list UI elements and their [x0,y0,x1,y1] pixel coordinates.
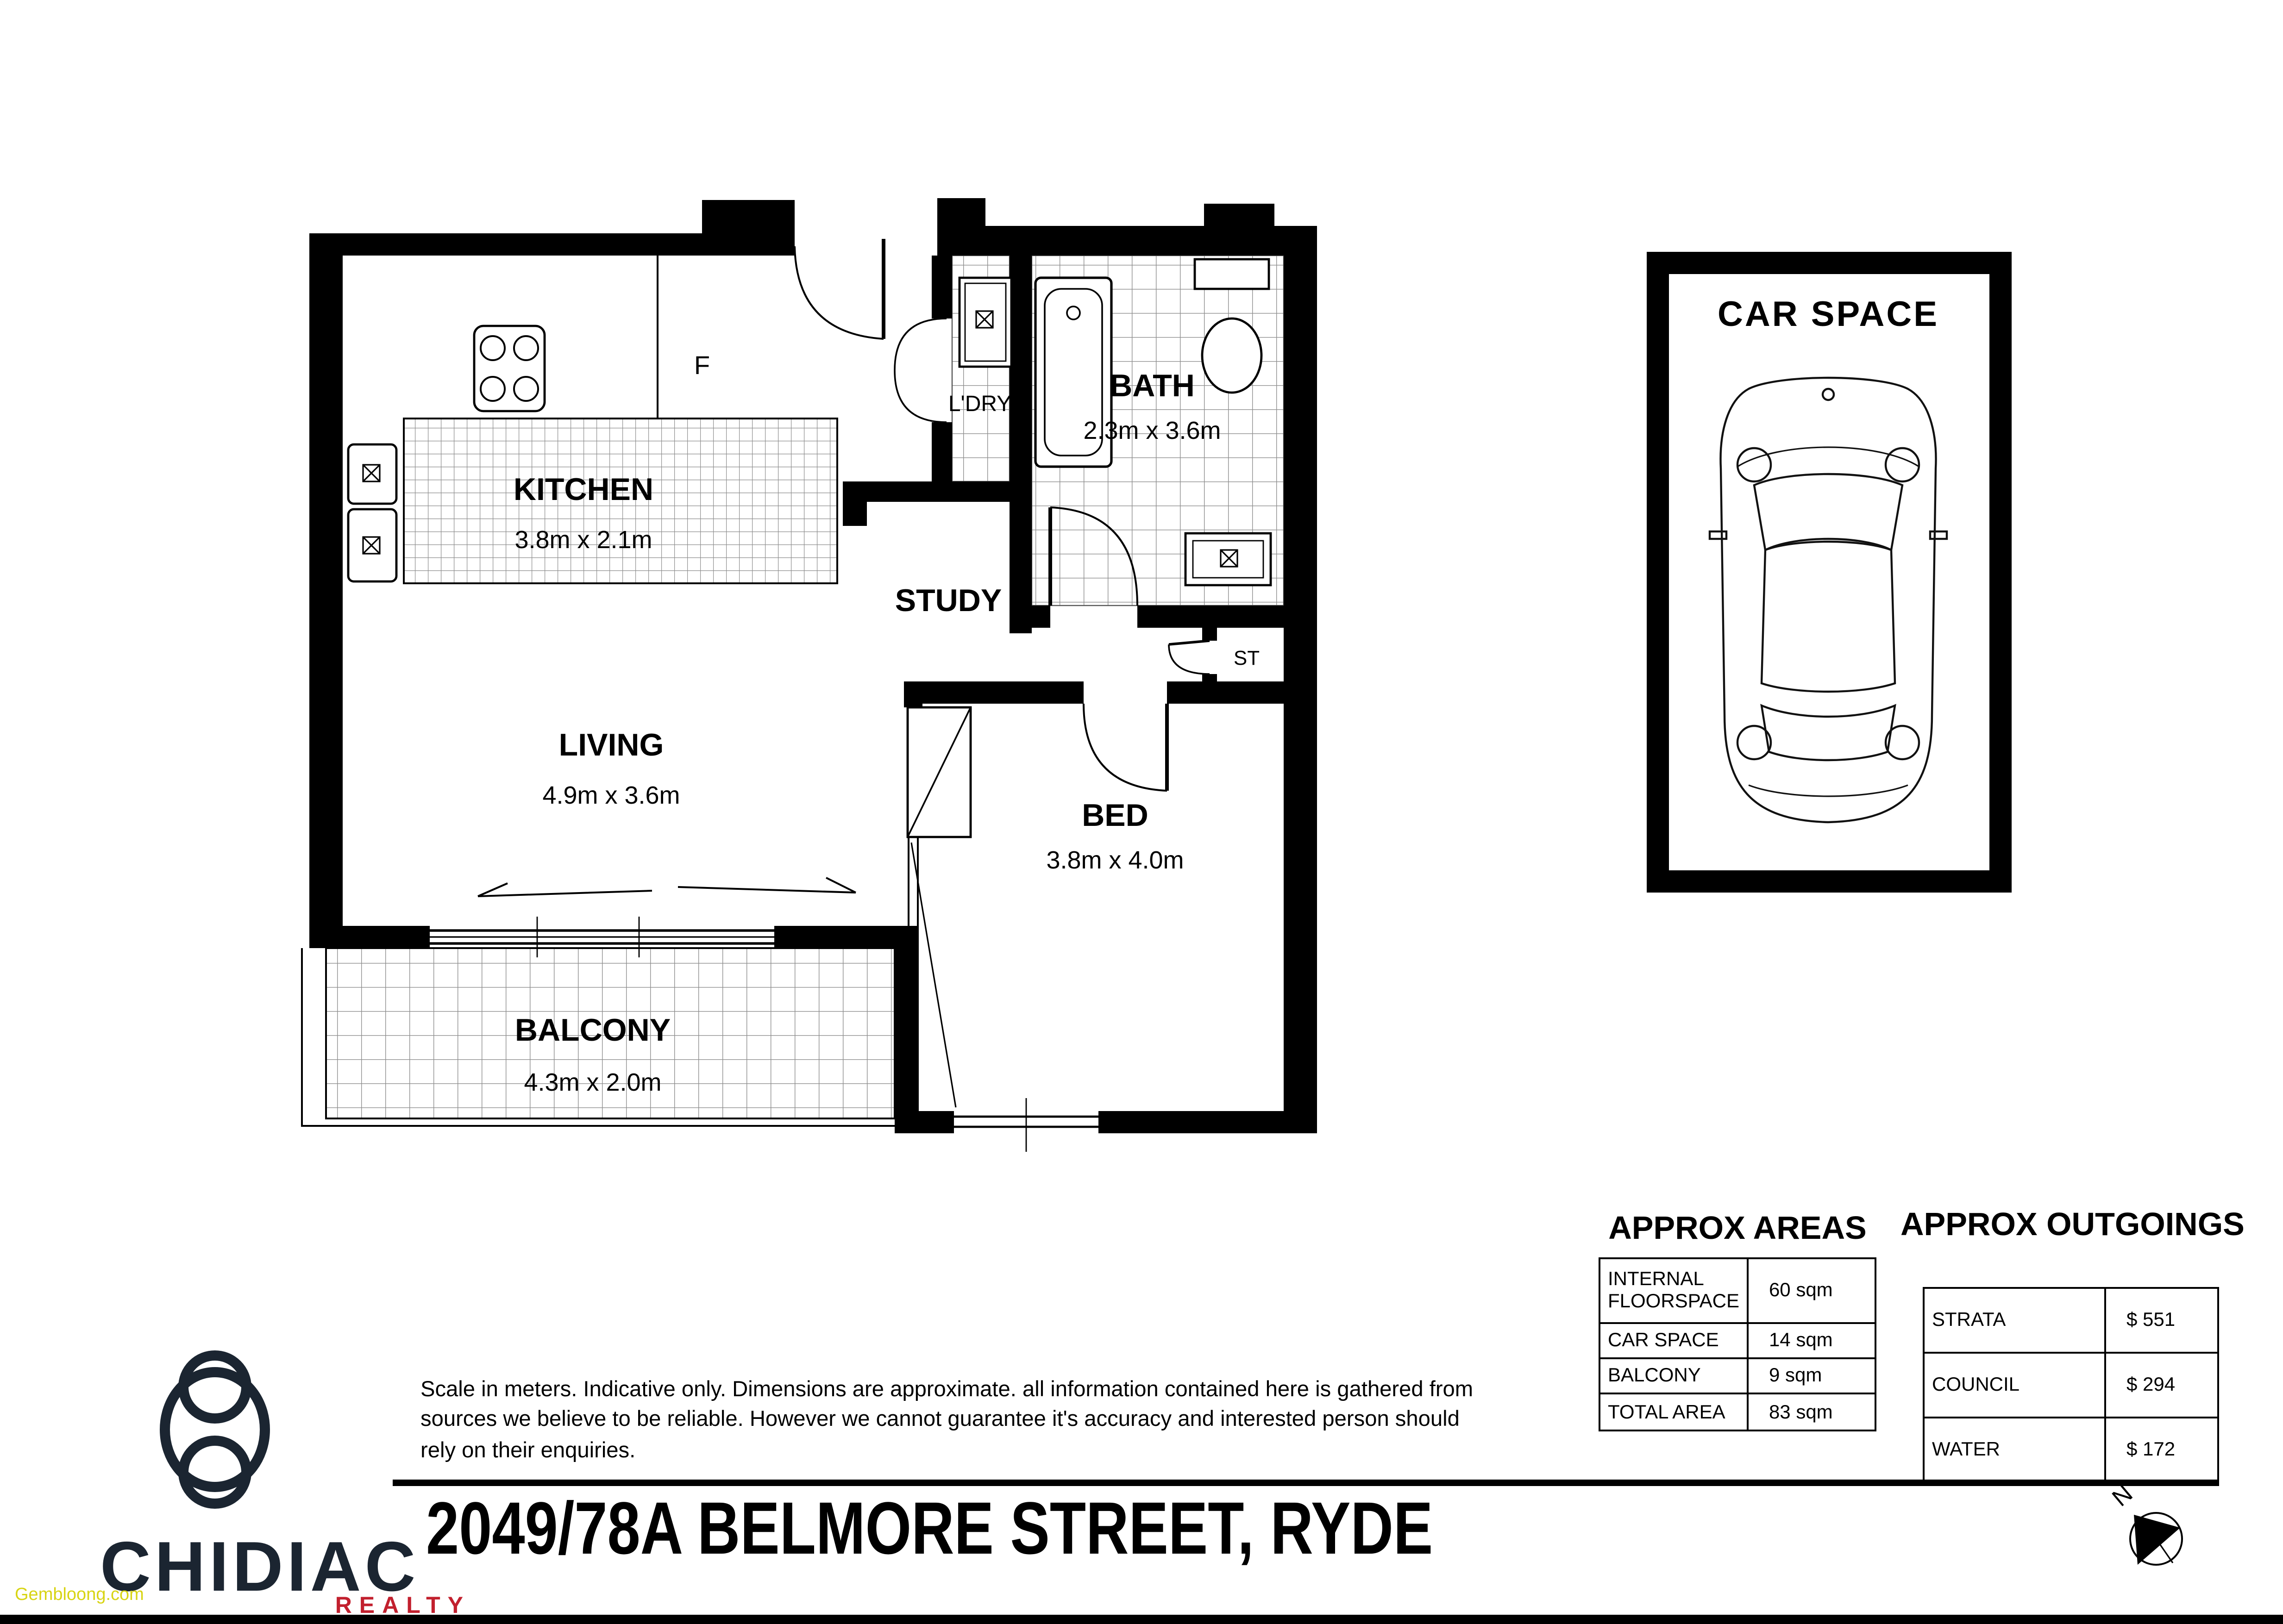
wall-entry-pier [702,200,795,256]
sink-cross-icon [363,465,380,481]
outgoing-label: STRATA [1924,1288,2105,1353]
laundry-label: L'DRY [948,392,1011,416]
area-value: 60 sqm [1748,1258,1875,1323]
table-row: STRATA $ 551 [1924,1288,2218,1353]
logo-top-ring [183,1355,246,1418]
areas-table-title: APPROX AREAS [1586,1209,1889,1248]
toilet-cistern [1195,259,1269,289]
study-label: STUDY [895,583,1002,618]
slider-arrow-right [678,878,856,893]
wall-bed-top-right [1167,681,1317,704]
wall-study-top [843,481,1032,502]
car-antenna [1823,389,1834,400]
kitchen-dims: 3.8m x 2.1m [514,526,652,554]
car-rear-window [1762,706,1895,760]
table-row: BALCONY 9 sqm [1599,1358,1875,1393]
outgoing-value: $ 172 [2105,1418,2218,1480]
north-compass: N [2107,1480,2182,1565]
logo-bottom-ring [183,1441,246,1504]
area-value: 14 sqm [1748,1323,1875,1358]
stove-burner-1 [481,336,505,360]
storage-label: ST [1234,647,1260,669]
car-windshield [1754,474,1902,550]
car-wheel-fr [1886,448,1919,481]
floorplan-sheet: KITCHEN 3.8m x 2.1m F L'DRY BATH 2.3m x … [0,0,2283,1624]
page-title: 2049/78A BELMORE STREET, RYDE [426,1489,1433,1572]
stove-burner-3 [481,377,505,401]
disclaimer-line: rely on their enquiries. [420,1435,1473,1465]
bath-dims: 2.3m x 3.6m [1083,417,1221,444]
wall-study-pier [843,481,867,526]
wall-right [1284,226,1317,1133]
areas-table: INTERNAL FLOORSPACE 60 sqm CAR SPACE 14 … [1599,1257,1876,1431]
living-dims: 4.9m x 3.6m [542,781,680,809]
wall-balcony-left-seg [309,926,430,948]
car-wheel-rl [1737,726,1771,759]
bed-dims: 3.8m x 4.0m [1046,846,1184,874]
car-space-box: CAR SPACE [1647,252,2012,893]
wall-st-upper [1202,628,1217,641]
outgoings-table-title: APPROX OUTGOINGS [1900,1206,2234,1244]
disclaimer-text: Scale in meters. Indicative only. Dimens… [420,1374,1473,1465]
car-roof [1762,542,1895,692]
area-value: 83 sqm [1748,1393,1875,1430]
wall-bed-bottom-left [919,1111,954,1133]
vanity-cross-icon [1221,550,1237,567]
dishwasher-cross-icon [363,537,380,554]
stove-burner-4 [514,377,538,401]
wall-balcony-right-seg [774,926,895,948]
car-boot-line [1749,785,1908,796]
car-mirror-left [1710,531,1726,539]
disclaimer-line: sources we believe to be reliable. Howev… [420,1405,1473,1435]
chidiac-logo-icon [165,1355,265,1504]
laundry-bifold-arc-1 [895,319,947,370]
entry-door-arc [795,246,884,339]
living-label: LIVING [559,727,664,762]
outgoings-table: STRATA $ 551 COUNCIL $ 294 WATER $ 172 [1923,1287,2219,1481]
table-row: TOTAL AREA 83 sqm [1599,1393,1875,1430]
watermark-text: Gembloong.com [15,1585,144,1605]
balcony-dims: 4.3m x 2.0m [524,1068,661,1096]
carspace-wall-top [1647,252,2012,274]
carspace-wall-right [1989,252,2012,893]
compass-tail [2156,1539,2173,1563]
balcony-label: BALCONY [515,1012,671,1048]
outgoing-value: $ 551 [2105,1288,2218,1353]
storage-door-leaf [1169,641,1210,644]
table-row: CAR SPACE 14 sqm [1599,1323,1875,1358]
wall-pier-b [937,198,985,228]
area-label: TOTAL AREA [1599,1393,1748,1430]
fridge-label: F [694,350,710,380]
table-row: INTERNAL FLOORSPACE 60 sqm [1599,1258,1875,1323]
area-label: INTERNAL FLOORSPACE [1599,1258,1748,1323]
wall-pier-c [1204,204,1274,226]
slider-arrow-left [478,883,652,896]
laundry-bifold-arc-2 [895,370,947,422]
carspace-wall-bottom [1647,870,2012,893]
wall-bed-corner [904,681,922,707]
wall-bed-top-left [919,681,1084,704]
wall-bath-bottom-stub [1010,606,1050,628]
bed-door-arc [1084,704,1167,791]
outgoing-label: WATER [1924,1418,2105,1480]
wall-top-kitchen [309,233,702,256]
carspace-wall-left [1647,252,1669,893]
wall-bath-bottom [1137,606,1317,628]
wall-left [309,233,343,926]
car-bonnet-line [1737,447,1919,467]
bathtub-drain [1067,306,1080,319]
area-label: CAR SPACE [1599,1323,1748,1358]
bath-label: BATH [1110,368,1195,403]
car-mirror-right [1930,531,1947,539]
car-body [1721,378,1936,822]
storage-door-arc [1169,644,1210,674]
wall-balcony-right [895,926,919,1133]
wall-bed-bottom-right [1098,1111,1317,1133]
wall-bath-left [1010,256,1032,633]
car-space-label: CAR SPACE [1718,294,1939,334]
table-row: COUNCIL $ 294 [1924,1353,2218,1418]
table-row: WATER $ 172 [1924,1418,2218,1480]
car-wheel-rr [1886,726,1919,759]
bed-label: BED [1082,798,1148,833]
wall-laundry-left-upper [932,256,952,319]
wall-top-bath [937,226,1317,256]
washer-cross-icon [976,311,993,328]
car-icon [1710,378,1947,822]
area-value: 9 sqm [1748,1358,1875,1393]
area-label: BALCONY [1599,1358,1748,1393]
toilet-bowl [1202,319,1261,393]
outgoing-value: $ 294 [2105,1353,2218,1418]
disclaimer-line: Scale in meters. Indicative only. Dimens… [420,1374,1473,1405]
brand-sub: REALTY [259,1593,470,1618]
car-wheel-fl [1737,448,1771,481]
outgoing-label: COUNCIL [1924,1353,2105,1418]
kitchen-label: KITCHEN [514,472,653,507]
stove-burner-2 [514,336,538,360]
